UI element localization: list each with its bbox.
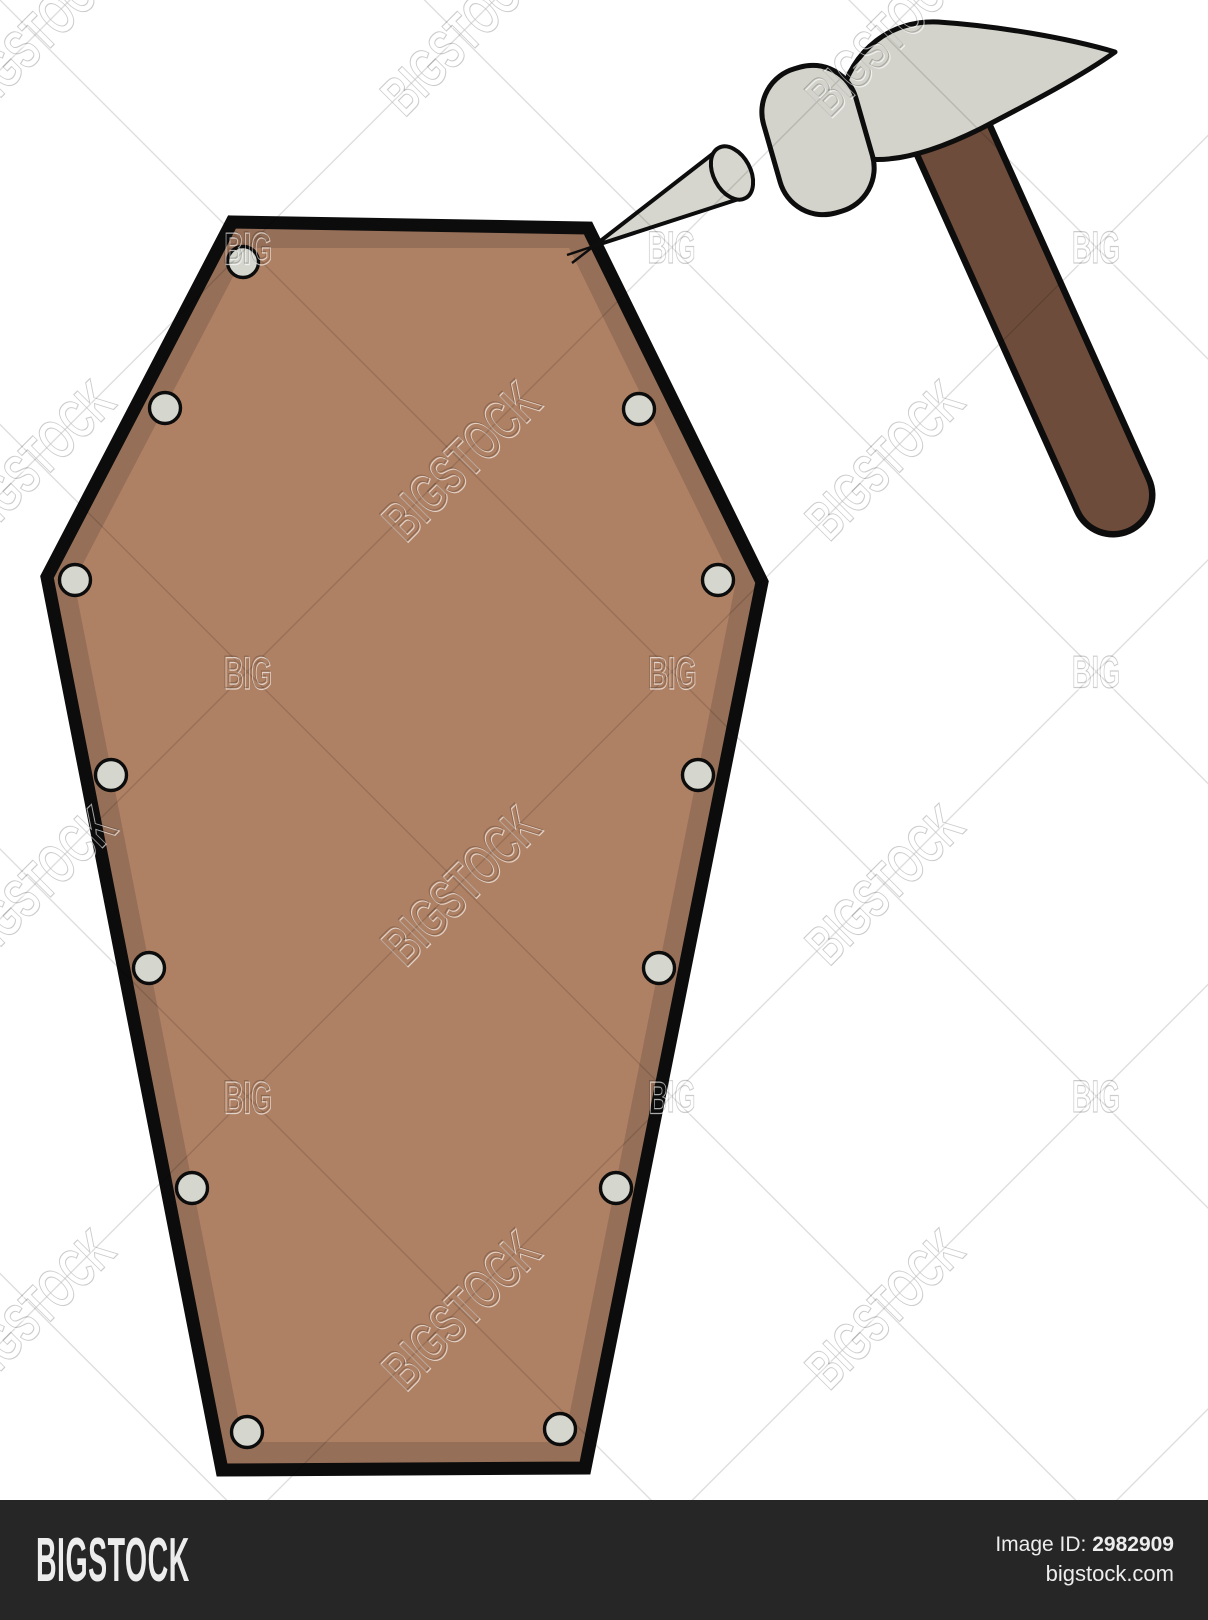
footer-meta: Image ID: 2982909 bigstock.com: [995, 1531, 1174, 1589]
coffin-tack: [134, 953, 165, 984]
coffin-tack: [60, 565, 91, 596]
coffin-tack: [601, 1173, 632, 1204]
hammer-handle: [939, 108, 1113, 495]
coffin-tack: [683, 760, 714, 791]
coffin-tack: [545, 1414, 576, 1445]
image-id-line: Image ID: 2982909: [995, 1531, 1174, 1559]
coffin-tack: [644, 953, 675, 984]
image-id-value: 2982909: [1092, 1533, 1174, 1556]
coffin-tack: [228, 247, 259, 278]
illustration-canvas: [0, 0, 1208, 1500]
coffin-tack: [177, 1173, 208, 1204]
footer-bar: BIGSTOCK Image ID: 2982909 bigstock.com: [0, 1500, 1208, 1620]
stock-image-preview: BIGSTOCKBIGSTOCKBIGBIGBIGSTOCKBIGSTOCKBI…: [0, 0, 1208, 1620]
site-url: bigstock.com: [995, 1559, 1174, 1589]
coffin-tack: [96, 760, 127, 791]
coffin-tack: [150, 393, 181, 424]
nail-spike-group: [567, 139, 762, 263]
image-id-label: Image ID:: [995, 1533, 1086, 1556]
coffin-lid: [74, 248, 735, 1442]
coffin-group: [47, 222, 762, 1470]
coffin-tack: [624, 394, 655, 425]
coffin-tack: [703, 565, 734, 596]
coffin-tack: [232, 1417, 263, 1448]
hammer-group: [751, 22, 1115, 495]
bigstock-logo: BIGSTOCK: [36, 1525, 190, 1596]
